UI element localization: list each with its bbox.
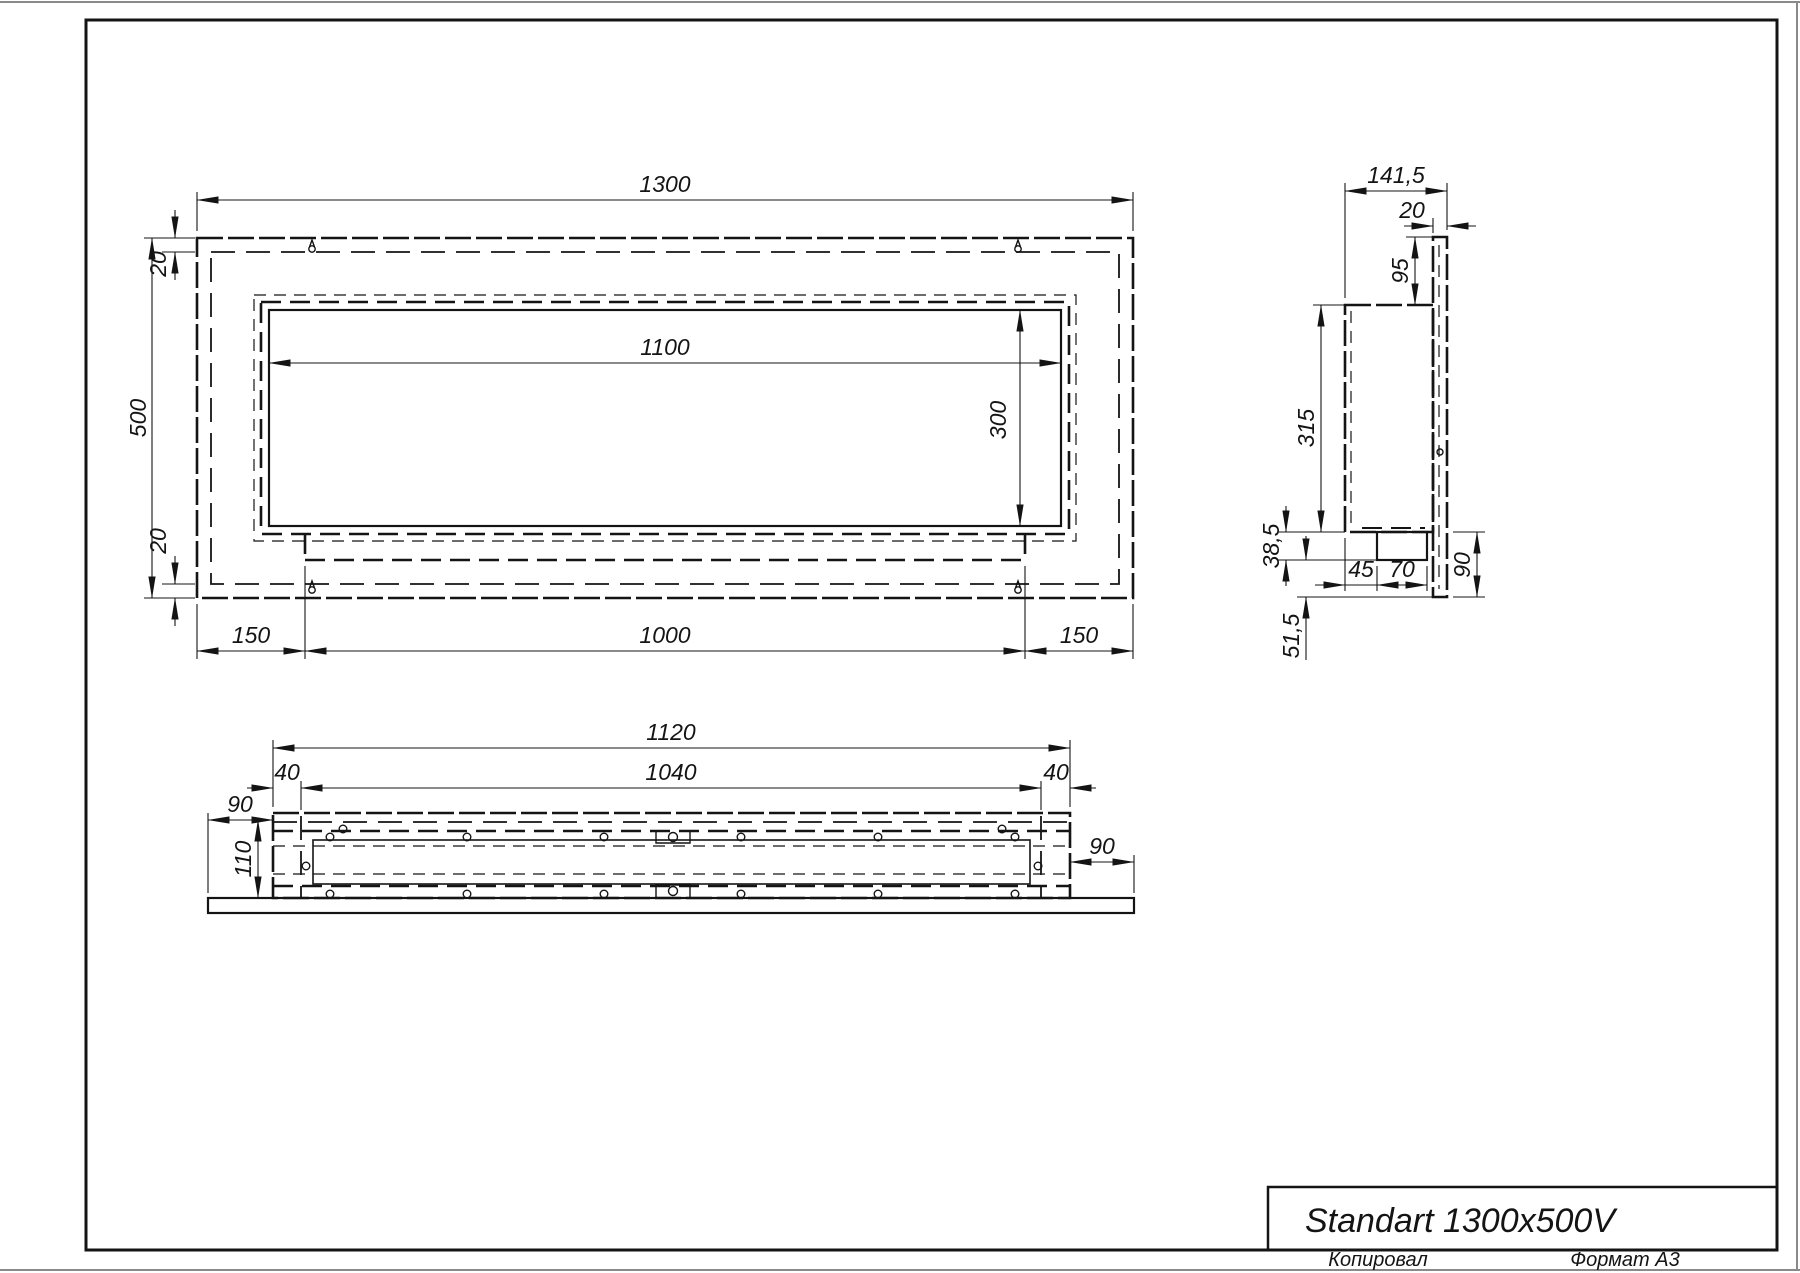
dim-bottom-inner-width: 1040 [645,759,696,785]
title-text: Standart 1300x500V [1305,1202,1618,1240]
dim-bottom-body-depth: 110 [230,840,256,877]
dim-front-opening-height: 300 [985,401,1011,440]
dim-bottom-left-overhang: 90 [227,791,253,817]
side-view: 141,5 20 95 315 38,5 51,5 45 70 90 [1258,162,1485,660]
dim-side-panel-thickness: 20 [1398,197,1425,223]
dim-front-right-offset: 150 [1060,622,1099,648]
dim-side-overall-depth: 141,5 [1367,162,1425,188]
drawing-sheet: 1300 500 20 20 1100 300 150 1000 150 [0,0,1800,1273]
keyhole-slot-icon [309,581,315,593]
dim-front-center-width: 1000 [639,622,690,648]
dim-side-tray-width: 70 [1389,556,1415,582]
dim-side-bottom-drop: 51,5 [1278,613,1304,658]
keyhole-slot-icon [309,240,315,252]
dim-side-tray-drop: 38,5 [1258,523,1284,568]
side-extension-lines [1278,183,1485,597]
bottom-view: 1120 1040 40 40 90 110 90 [208,719,1134,913]
dim-side-top-offset: 95 [1387,258,1413,284]
side-hole [1437,449,1443,455]
dim-front-overall-width: 1300 [639,171,690,197]
side-hidden-lines [1351,245,1439,589]
drawing-frame [86,20,1777,1250]
dim-front-opening-width: 1100 [640,334,690,360]
bottom-front-panel-strip [208,898,1134,913]
dim-front-left-offset: 150 [232,622,271,648]
side-body [1345,305,1433,532]
dim-front-bottom-inset: 20 [145,528,171,555]
front-inset-hidden-rect [211,252,1119,584]
dim-bottom-right-overhang: 90 [1089,833,1115,859]
technical-drawing-canvas: 1300 500 20 20 1100 300 150 1000 150 [0,0,1800,1273]
title-block: Standart 1300x500V Копировал Формат А3 [1268,1187,1777,1271]
front-opening-hidden-outer [254,295,1076,541]
dim-bottom-body-width: 1120 [646,719,696,745]
dim-bottom-right-inset: 40 [1043,759,1069,785]
dim-side-tray-offset: 45 [1348,556,1374,582]
dim-front-top-inset: 20 [145,251,171,278]
dim-bottom-left-inset: 40 [274,759,300,785]
footer-format-label: Формат А3 [1570,1249,1679,1271]
side-front-panel [1433,237,1447,597]
dim-side-body-height: 315 [1293,409,1319,448]
dim-side-lower-height: 90 [1449,552,1475,578]
dim-front-overall-height: 500 [125,399,151,438]
bottom-center-tab [656,831,690,843]
footer-copied-label: Копировал [1328,1249,1427,1271]
front-view: 1300 500 20 20 1100 300 150 1000 150 [125,171,1133,659]
bottom-hidden-line [273,846,1070,874]
keyhole-slot-icon [1015,240,1021,252]
front-burner-hidden-box [305,534,1025,560]
keyhole-slot-icon [1015,581,1021,593]
